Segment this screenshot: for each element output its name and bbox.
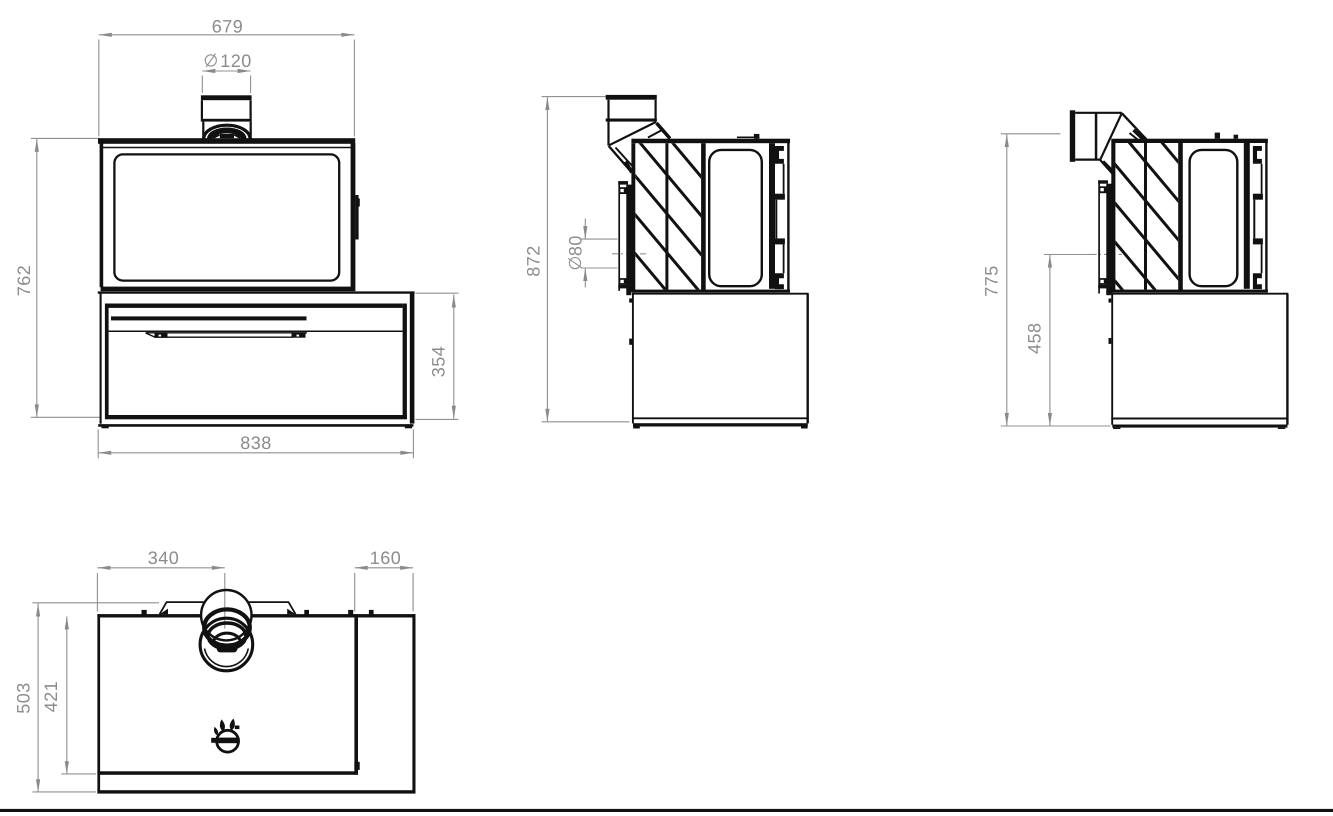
svg-text:340: 340 bbox=[148, 548, 180, 568]
svg-text:503: 503 bbox=[14, 682, 34, 714]
svg-text:160: 160 bbox=[370, 548, 402, 568]
svg-text:838: 838 bbox=[240, 433, 272, 453]
svg-text:458: 458 bbox=[1025, 322, 1045, 354]
svg-text:80: 80 bbox=[566, 235, 586, 256]
svg-text:775: 775 bbox=[982, 265, 1002, 297]
svg-text:679: 679 bbox=[212, 17, 244, 37]
svg-text:354: 354 bbox=[428, 346, 448, 378]
svg-text:120: 120 bbox=[220, 51, 252, 71]
svg-text:762: 762 bbox=[14, 265, 34, 297]
svg-text:872: 872 bbox=[524, 245, 544, 277]
svg-text:421: 421 bbox=[41, 681, 61, 713]
